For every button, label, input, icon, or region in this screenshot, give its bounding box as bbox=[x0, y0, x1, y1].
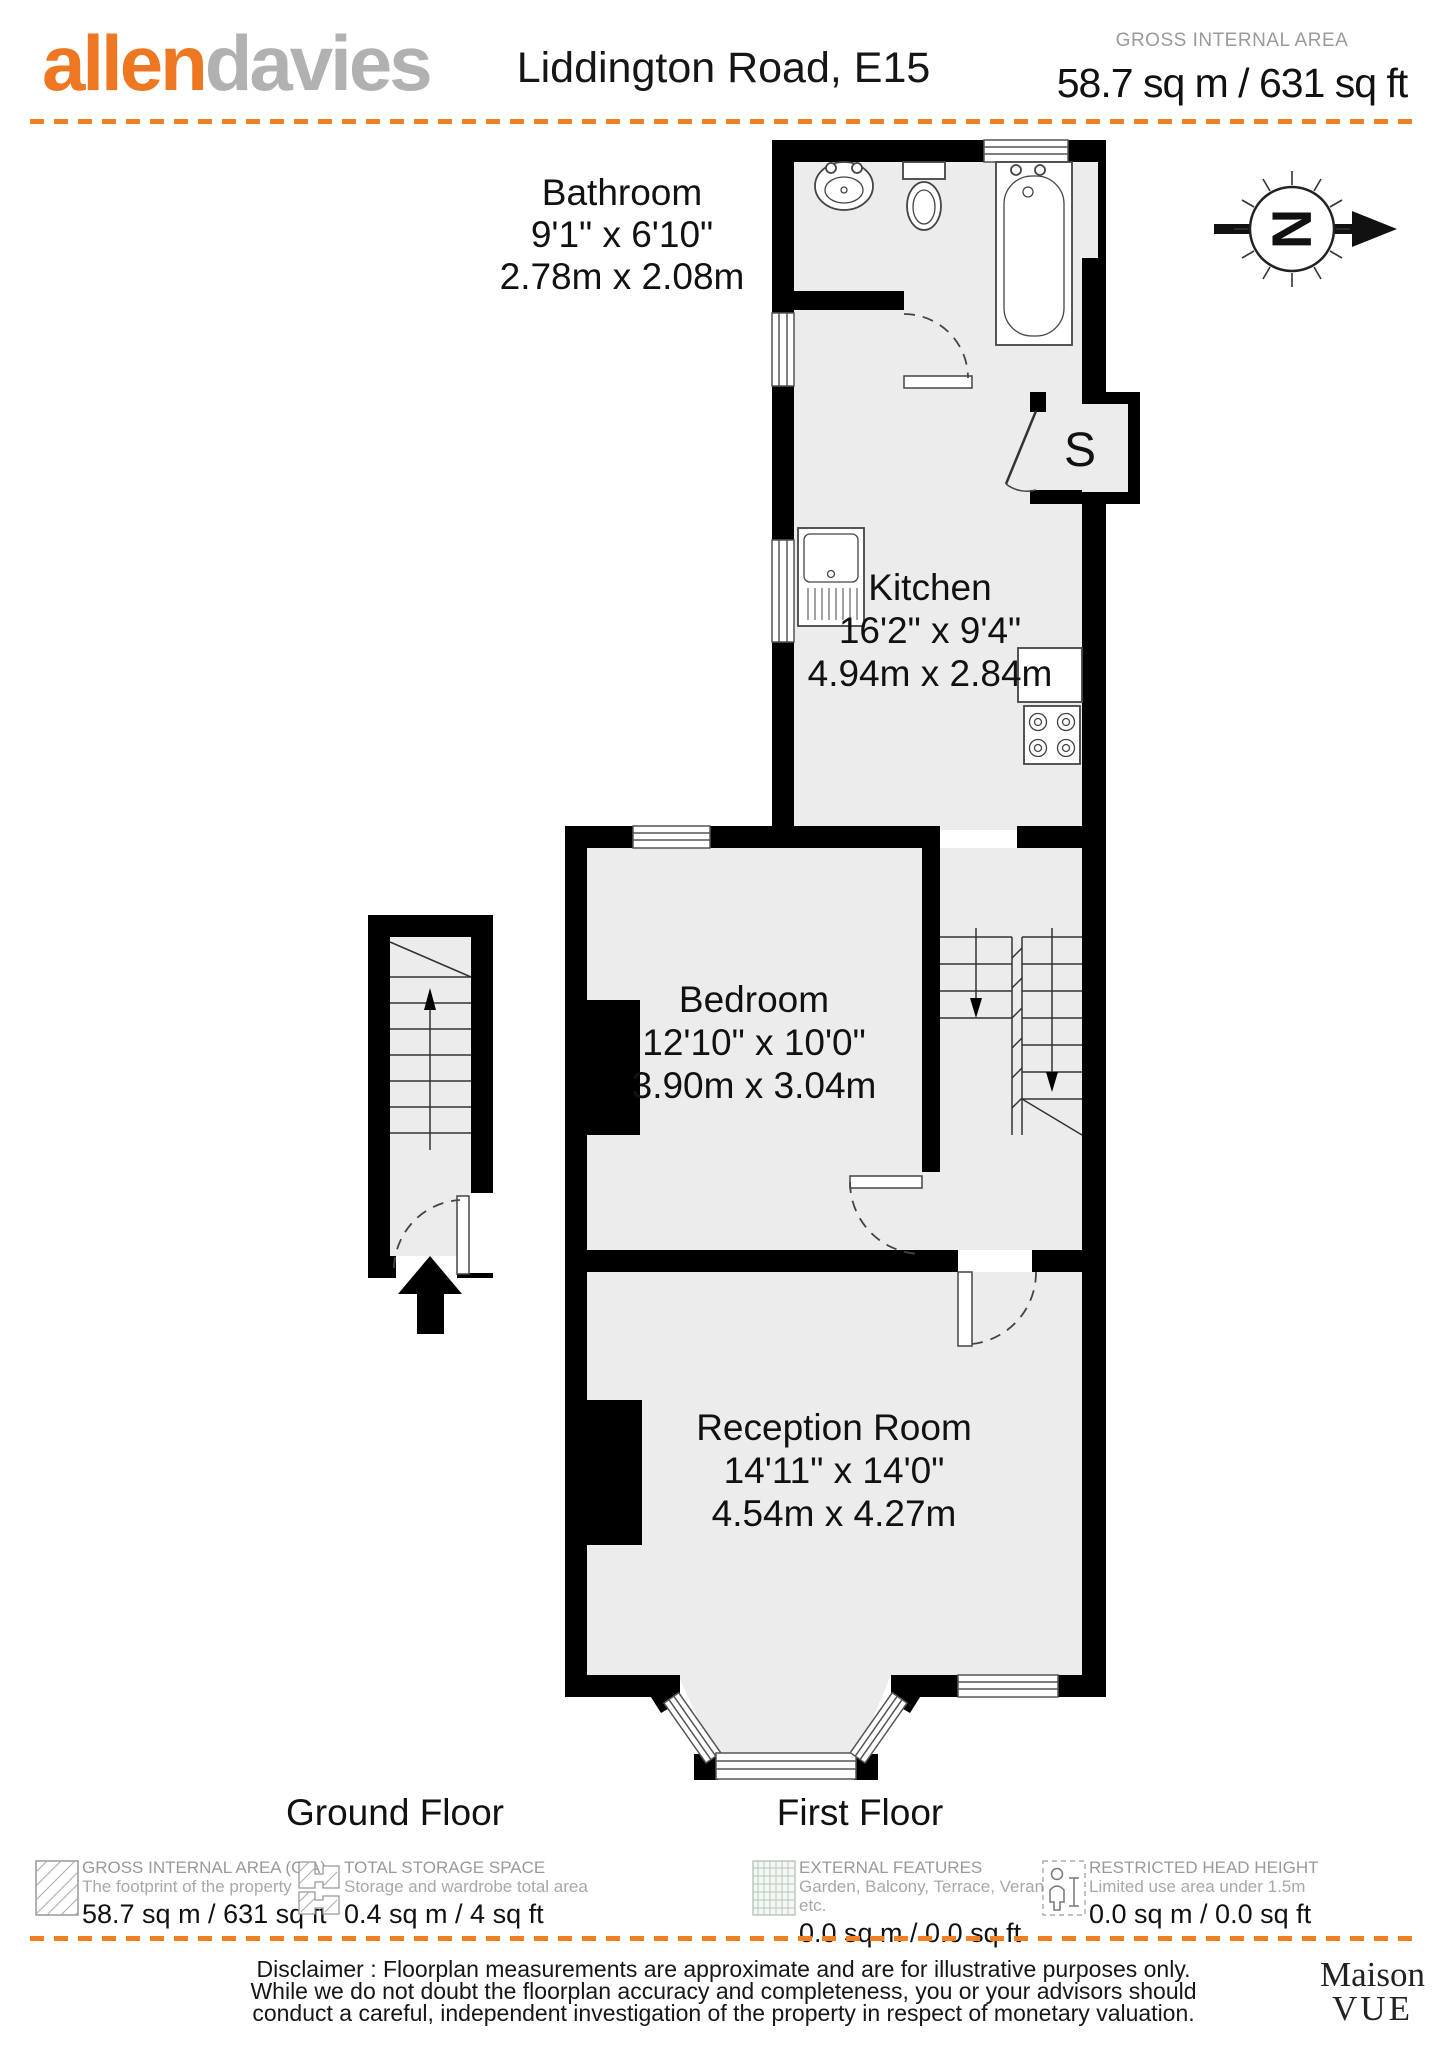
bathroom-door-leaf bbox=[904, 376, 972, 388]
first-floor-label: First Floor bbox=[777, 1792, 944, 1833]
head-height-icon bbox=[1042, 1860, 1086, 1916]
reception-label: Reception Room bbox=[696, 1407, 972, 1448]
reception-door-leaf bbox=[958, 1272, 972, 1346]
landing-window bbox=[772, 313, 794, 386]
toilet-cistern bbox=[903, 162, 945, 179]
maison-vue-logo: Maison VUE bbox=[1300, 1958, 1445, 2026]
wall bbox=[565, 826, 940, 848]
wall bbox=[1030, 392, 1046, 412]
stair-hall-floor bbox=[940, 848, 1082, 1250]
legend-subtitle: Storage and wardrobe total area bbox=[344, 1877, 644, 1896]
legend-value: 0.4 sq m / 4 sq ft bbox=[344, 1899, 644, 1930]
legend-title: TOTAL STORAGE SPACE bbox=[344, 1858, 644, 1877]
maison-logo-line1: Maison bbox=[1300, 1958, 1445, 1991]
entry-arrow-stem bbox=[417, 1294, 444, 1334]
floorplan-drawing: Bathroom 9'1" x 6'10" 2.78m x 2.08m Kitc… bbox=[0, 0, 1447, 1860]
legend-title: RESTRICTED HEAD HEIGHT bbox=[1089, 1858, 1389, 1877]
bay-window-center bbox=[716, 1753, 856, 1779]
north-arrow-icon bbox=[1352, 211, 1397, 247]
legend-value: 0.0 sq m / 0.0 sq ft bbox=[799, 1918, 1099, 1949]
bathroom-dims-imperial: 9'1" x 6'10" bbox=[531, 214, 713, 255]
legend-subtitle: Limited use area under 1.5m bbox=[1089, 1877, 1389, 1896]
ground-floor-plan bbox=[368, 915, 495, 1334]
wall bbox=[1032, 1250, 1106, 1272]
storage-label: S bbox=[1064, 424, 1096, 477]
wall bbox=[1082, 492, 1140, 504]
wall bbox=[772, 291, 904, 310]
wall bbox=[772, 140, 794, 848]
external-grid-icon bbox=[752, 1860, 796, 1916]
wall bbox=[1017, 826, 1082, 848]
reception-chimney-breast bbox=[587, 1400, 642, 1545]
compass-north-letter: N bbox=[1261, 209, 1324, 249]
floorplan-page: allendavies Liddington Road, E15 GROSS I… bbox=[0, 0, 1447, 2048]
compass: N bbox=[1214, 171, 1397, 287]
legend-item-head-height: RESTRICTED HEAD HEIGHT Limited use area … bbox=[1042, 1858, 1372, 1920]
disclaimer: Disclaimer : Floorplan measurements are … bbox=[0, 1958, 1447, 2024]
kitchen-label: Kitchen bbox=[868, 567, 991, 608]
legend-item-storage: TOTAL STORAGE SPACE Storage and wardrobe… bbox=[297, 1858, 627, 1920]
disclaimer-line: While we do not doubt the floorplan accu… bbox=[0, 1980, 1447, 2002]
entrance-door-leaf bbox=[457, 1196, 469, 1274]
orange-divider-bottom bbox=[30, 1936, 1417, 1941]
legend-value: 0.0 sq m / 0.0 sq ft bbox=[1089, 1899, 1389, 1930]
bath-niche-floor bbox=[1082, 162, 1098, 258]
maison-logo-line2: VUE bbox=[1300, 1991, 1445, 2026]
wall bbox=[1128, 392, 1140, 504]
ground-floor-label: Ground Floor bbox=[286, 1792, 504, 1833]
bedroom-window bbox=[633, 826, 710, 848]
gia-hatch-icon bbox=[35, 1860, 79, 1916]
disclaimer-line: Disclaimer : Floorplan measurements are … bbox=[0, 1958, 1447, 1980]
wall bbox=[565, 1250, 958, 1272]
entrance-door-gap bbox=[469, 1193, 495, 1273]
reception-dims-metric: 4.54m x 4.27m bbox=[712, 1493, 957, 1534]
kitchen-dims-imperial: 16'2" x 9'4" bbox=[839, 610, 1021, 651]
wall bbox=[1098, 162, 1106, 258]
first-floor-plan: Bathroom 9'1" x 6'10" 2.78m x 2.08m Kitc… bbox=[500, 140, 1140, 1780]
bedroom-door-leaf bbox=[850, 1176, 922, 1188]
hob-icon bbox=[1024, 706, 1080, 764]
bedroom-dims-imperial: 12'10" x 10'0" bbox=[642, 1022, 866, 1063]
reception-dims-imperial: 14'11" x 14'0" bbox=[724, 1450, 945, 1491]
wall bbox=[922, 848, 940, 1172]
legend-item-external: EXTERNAL FEATURES Garden, Balcony, Terra… bbox=[752, 1858, 1082, 1920]
bathroom-label: Bathroom bbox=[542, 172, 702, 213]
bathroom-dims-metric: 2.78m x 2.08m bbox=[500, 256, 745, 297]
bedroom-doorway-floor bbox=[922, 1172, 940, 1250]
kitchen-dims-metric: 4.94m x 2.84m bbox=[808, 653, 1053, 694]
reception-window bbox=[958, 1675, 1058, 1697]
wall bbox=[1030, 490, 1082, 504]
storage-hatch-icon bbox=[297, 1860, 341, 1916]
kitchen-window bbox=[772, 540, 794, 642]
bathroom-window bbox=[984, 140, 1068, 162]
disclaimer-line: conduct a careful, independent investiga… bbox=[0, 2002, 1447, 2024]
bedroom-label: Bedroom bbox=[679, 979, 829, 1020]
bedroom-dims-metric: 3.90m x 3.04m bbox=[632, 1065, 877, 1106]
